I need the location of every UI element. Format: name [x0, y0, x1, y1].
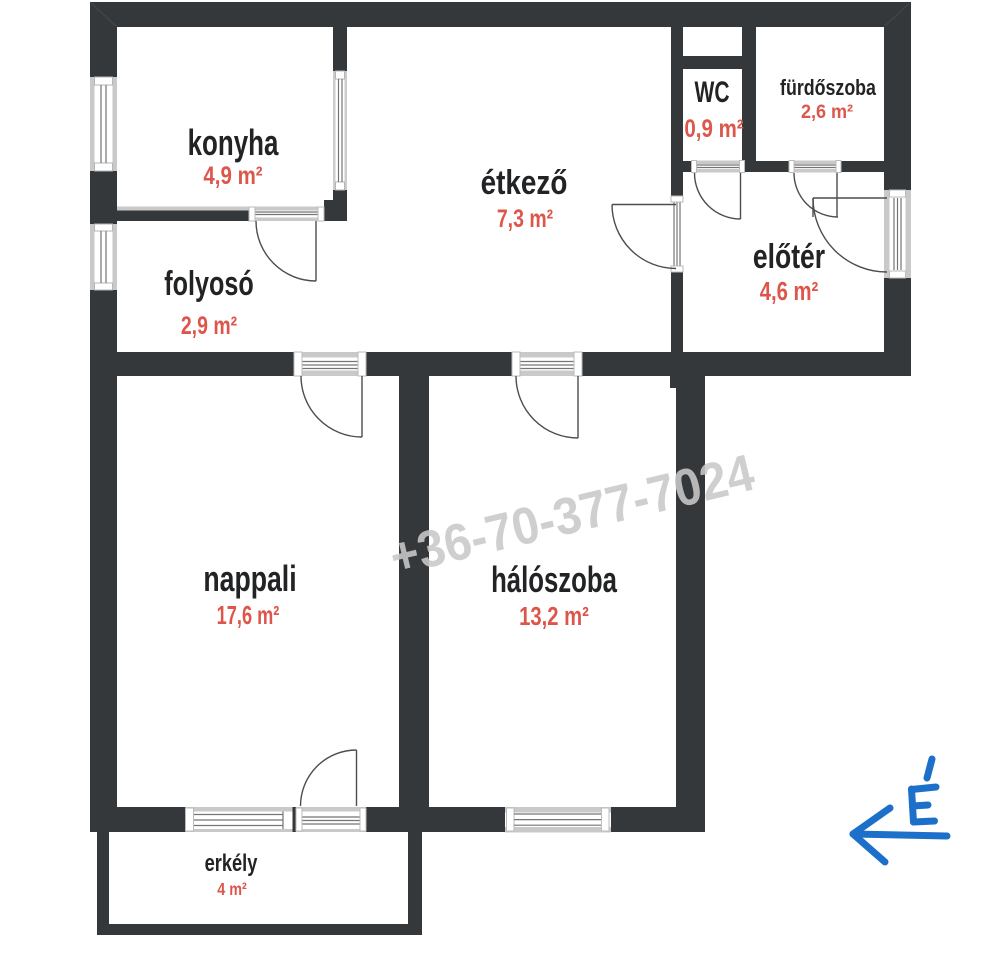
svg-text:fürdőszoba: fürdőszoba	[780, 76, 877, 100]
svg-text:étkező: étkező	[481, 163, 568, 201]
svg-text:2,6 m²: 2,6 m²	[801, 101, 853, 123]
svg-text:2,9 m²: 2,9 m²	[181, 312, 237, 340]
svg-text:4,9 m²: 4,9 m²	[203, 161, 263, 189]
svg-text:hálószoba: hálószoba	[491, 560, 617, 600]
svg-text:erkély: erkély	[205, 850, 258, 877]
svg-text:folyosó: folyosó	[164, 265, 253, 303]
svg-text:konyha: konyha	[188, 123, 279, 163]
svg-text:4,6 m²: 4,6 m²	[760, 277, 819, 306]
svg-text:0,9 m²: 0,9 m²	[684, 114, 744, 142]
svg-text:WC: WC	[695, 77, 730, 109]
svg-text:nappali: nappali	[203, 558, 296, 599]
svg-text:17,6 m²: 17,6 m²	[217, 601, 280, 630]
svg-text:4 m²: 4 m²	[217, 880, 247, 900]
svg-text:7,3 m²: 7,3 m²	[497, 205, 553, 233]
svg-text:előtér: előtér	[753, 238, 825, 276]
svg-text:13,2 m²: 13,2 m²	[519, 602, 589, 631]
